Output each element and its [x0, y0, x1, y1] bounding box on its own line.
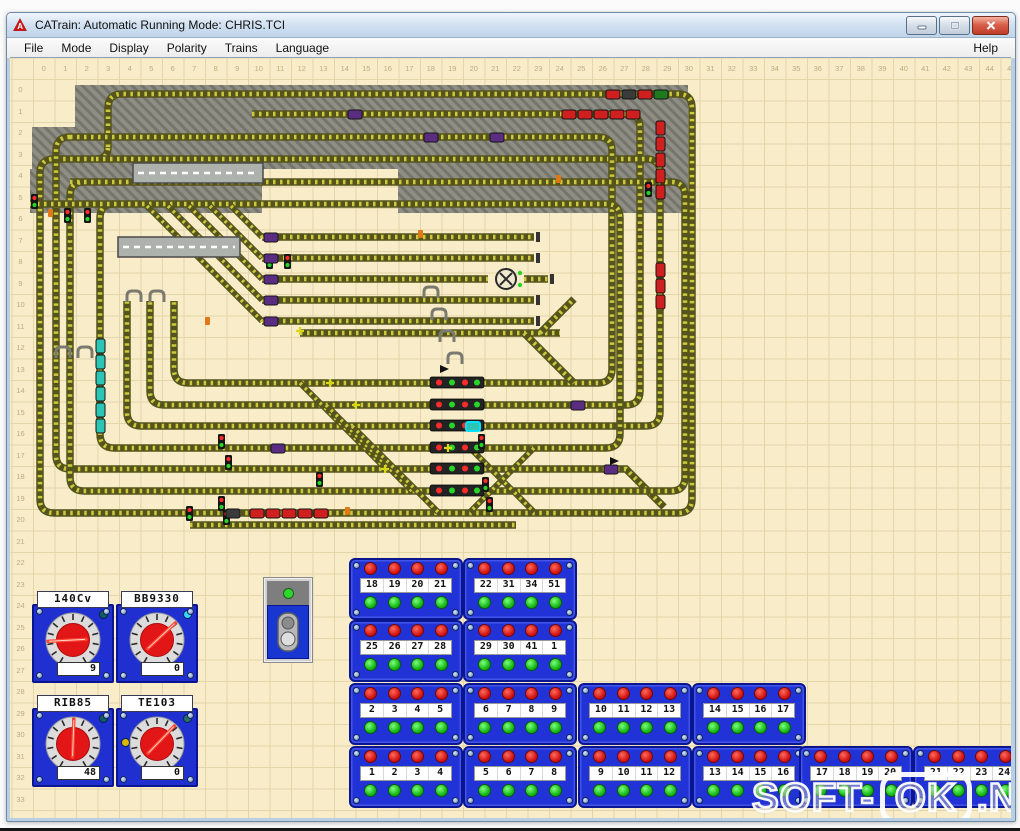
green-indicator-light[interactable] — [707, 721, 720, 734]
screw-icon — [681, 750, 688, 757]
turnout-number: 22 — [948, 767, 970, 780]
ruler-number: 17 — [10, 451, 31, 460]
train[interactable] — [348, 110, 362, 119]
turnout-number: 16 — [750, 704, 772, 717]
menu-item-polarity[interactable]: Polarity — [158, 40, 216, 56]
green-indicator-light[interactable] — [411, 658, 424, 671]
ruler-number: 10 — [10, 300, 31, 309]
red-indicator-light[interactable] — [549, 750, 562, 763]
screw-icon — [452, 671, 459, 678]
ruler-number: 21 — [10, 537, 31, 546]
turnout-number: 19 — [857, 767, 879, 780]
power-switch-body[interactable] — [267, 605, 309, 659]
light-row — [694, 685, 804, 702]
signal[interactable] — [284, 254, 291, 269]
ruler-number: 37 — [829, 64, 851, 73]
ruler-number: 24 — [549, 64, 571, 73]
turnout-number: 11 — [613, 704, 635, 717]
green-indicator-light[interactable] — [435, 596, 448, 609]
red-indicator-light[interactable] — [593, 687, 606, 700]
green-indicator-light[interactable] — [525, 658, 538, 671]
turnout-number: 34 — [521, 579, 543, 592]
red-indicator-light[interactable] — [549, 562, 562, 575]
red-indicator-light[interactable] — [754, 687, 767, 700]
light-row — [694, 782, 804, 799]
turnout-number: 21 — [429, 579, 451, 592]
light-row — [801, 782, 911, 799]
red-indicator-light[interactable] — [502, 750, 515, 763]
train[interactable] — [264, 233, 278, 242]
red-indicator-light[interactable] — [838, 750, 851, 763]
red-indicator-light[interactable] — [640, 750, 653, 763]
signal[interactable] — [31, 194, 38, 209]
turnout-number-strip: 17181920 — [810, 766, 902, 781]
turnout-number: 10 — [590, 704, 612, 717]
ruler-number: 29 — [657, 64, 679, 73]
green-indicator-light[interactable] — [975, 784, 988, 797]
green-indicator-light[interactable] — [388, 596, 401, 609]
ruler-number: 22 — [10, 558, 31, 567]
green-indicator-light[interactable] — [640, 721, 653, 734]
red-indicator-light[interactable] — [388, 687, 401, 700]
turnout-number-strip: 18192021 — [360, 578, 452, 593]
green-indicator-light[interactable] — [838, 784, 851, 797]
green-indicator-light[interactable] — [364, 721, 377, 734]
turnout-number: 22 — [475, 579, 497, 592]
green-indicator-light[interactable] — [861, 784, 874, 797]
signal[interactable] — [316, 472, 323, 487]
red-indicator-light[interactable] — [502, 624, 515, 637]
turnout-number: 17 — [772, 704, 794, 717]
red-indicator-light[interactable] — [617, 687, 630, 700]
green-indicator-light[interactable] — [364, 784, 377, 797]
ruler-number: 22 — [506, 64, 528, 73]
red-indicator-light[interactable] — [525, 687, 538, 700]
screw-icon — [120, 712, 127, 719]
red-indicator-light[interactable] — [478, 687, 491, 700]
green-indicator-light[interactable] — [952, 784, 965, 797]
block-signal-bar[interactable] — [430, 377, 484, 388]
green-indicator-light[interactable] — [640, 784, 653, 797]
menu-item-file[interactable]: File — [15, 40, 52, 56]
screw-icon — [582, 734, 589, 741]
green-indicator-light[interactable] — [435, 721, 448, 734]
minimize-button[interactable] — [906, 16, 937, 35]
tunnel-portal — [78, 347, 92, 358]
green-indicator-light[interactable] — [411, 596, 424, 609]
throttle-name: 140Cv — [37, 591, 109, 608]
screw-icon — [103, 672, 110, 679]
screw-icon — [120, 608, 127, 615]
turnout-number-strip: 2930411 — [474, 640, 566, 655]
green-indicator-light[interactable] — [814, 784, 827, 797]
throttle-controller-140Cv[interactable]: 140Cv 9 — [32, 591, 114, 683]
red-indicator-light[interactable] — [411, 562, 424, 575]
uncoupler-marker — [48, 209, 53, 217]
turnout-number: 3 — [407, 767, 429, 780]
train[interactable] — [466, 422, 480, 431]
turnout-number: 12 — [636, 704, 658, 717]
switch-marker[interactable] — [352, 401, 360, 409]
screw-icon — [467, 562, 474, 569]
light-row — [580, 748, 690, 765]
tracks[interactable] — [30, 94, 692, 525]
red-indicator-light[interactable] — [778, 687, 791, 700]
light-row — [351, 656, 461, 673]
green-indicator-light[interactable] — [478, 721, 491, 734]
screw-icon — [103, 776, 110, 783]
throttle-body: 9 — [32, 604, 114, 683]
screw-icon — [467, 609, 474, 616]
screw-icon — [353, 687, 360, 694]
green-indicator-light[interactable] — [754, 784, 767, 797]
throttle-controller-BB9330[interactable]: BB9330 0 — [116, 591, 198, 683]
ruler-number: 13 — [313, 64, 335, 73]
red-indicator-light[interactable] — [731, 750, 744, 763]
screw-icon — [467, 624, 474, 631]
green-indicator-light[interactable] — [617, 784, 630, 797]
green-indicator-light[interactable] — [388, 721, 401, 734]
screw-icon — [566, 687, 573, 694]
red-indicator-light[interactable] — [928, 750, 941, 763]
tunnel-portal — [440, 331, 454, 342]
light-row — [801, 748, 911, 765]
ruler-number: 44 — [979, 64, 1001, 73]
train[interactable] — [96, 339, 105, 433]
ruler-number: 0 — [10, 85, 31, 94]
red-indicator-light[interactable] — [502, 562, 515, 575]
signal[interactable] — [218, 496, 225, 511]
green-indicator-light[interactable] — [999, 784, 1011, 797]
ruler-number: 26 — [592, 64, 614, 73]
turnout-number: 19 — [384, 579, 406, 592]
red-indicator-light[interactable] — [617, 750, 630, 763]
signal[interactable] — [186, 506, 193, 521]
turnout-panel-17-18-19-20: 17181920 — [799, 746, 913, 808]
throttle-value: 48 — [57, 766, 100, 780]
red-indicator-light[interactable] — [754, 750, 767, 763]
title-bar[interactable]: A CATrain: Automatic Running Mode: CHRIS… — [7, 13, 1015, 38]
tunnel-cover — [32, 127, 688, 169]
screw-icon — [917, 750, 924, 757]
screw-icon — [566, 562, 573, 569]
green-indicator-light[interactable] — [707, 784, 720, 797]
green-indicator-light[interactable] — [435, 658, 448, 671]
uncoupler-marker — [418, 230, 423, 238]
green-indicator-light[interactable] — [478, 658, 491, 671]
ruler-number: 31 — [700, 64, 722, 73]
switch-marker[interactable] — [326, 379, 334, 387]
green-indicator-light[interactable] — [525, 596, 538, 609]
turnout-number: 9 — [590, 767, 612, 780]
screw-icon — [681, 797, 688, 804]
signal[interactable] — [266, 254, 273, 269]
block-signal-bar[interactable] — [430, 442, 484, 453]
red-indicator-light[interactable] — [364, 687, 377, 700]
signal[interactable] — [482, 477, 489, 492]
green-indicator-light[interactable] — [549, 784, 562, 797]
red-indicator-light[interactable] — [478, 562, 491, 575]
red-indicator-light[interactable] — [364, 750, 377, 763]
buffer-stop — [536, 253, 540, 263]
menu-item-display[interactable]: Display — [100, 40, 157, 56]
ruler-number: 27 — [10, 666, 31, 675]
ruler-number: 34 — [10, 816, 31, 818]
red-indicator-light[interactable] — [388, 624, 401, 637]
throttle-led-icon — [121, 738, 130, 747]
green-indicator-light[interactable] — [549, 596, 562, 609]
switch-marker[interactable] — [444, 444, 452, 452]
train[interactable] — [264, 275, 278, 284]
red-indicator-light[interactable] — [664, 750, 677, 763]
red-indicator-light[interactable] — [664, 687, 677, 700]
turnout-number: 20 — [407, 579, 429, 592]
green-indicator-light[interactable] — [525, 784, 538, 797]
block-signal-bar[interactable] — [430, 420, 484, 431]
red-indicator-light[interactable] — [640, 687, 653, 700]
red-indicator-light[interactable] — [707, 750, 720, 763]
screw-icon — [353, 797, 360, 804]
screw-icon — [696, 750, 703, 757]
green-indicator-light[interactable] — [388, 658, 401, 671]
green-indicator-light[interactable] — [478, 784, 491, 797]
train[interactable] — [264, 317, 278, 326]
ruler-number: 7 — [184, 64, 206, 73]
turnout-panel-1-2-3-4: 1234 — [349, 746, 463, 808]
train[interactable] — [562, 110, 640, 119]
tunnel-portal — [150, 291, 164, 302]
signal[interactable] — [64, 208, 71, 223]
red-indicator-light[interactable] — [411, 624, 424, 637]
light-row — [465, 748, 575, 765]
red-indicator-light[interactable] — [731, 687, 744, 700]
green-indicator-light[interactable] — [549, 721, 562, 734]
green-indicator-light[interactable] — [478, 596, 491, 609]
screw-icon — [566, 797, 573, 804]
window-buttons — [906, 16, 1009, 35]
screw-icon — [36, 672, 43, 679]
light-row — [694, 748, 804, 765]
red-indicator-light[interactable] — [549, 624, 562, 637]
train[interactable] — [656, 121, 665, 199]
red-indicator-light[interactable] — [593, 750, 606, 763]
ruler-number: 1 — [55, 64, 77, 73]
block-signal-bar[interactable] — [430, 463, 484, 474]
tunnel-cover — [398, 169, 688, 213]
green-indicator-light[interactable] — [664, 784, 677, 797]
ruler-number: 29 — [10, 709, 31, 718]
green-indicator-light[interactable] — [502, 721, 515, 734]
signal[interactable] — [645, 182, 652, 197]
green-indicator-light[interactable] — [525, 721, 538, 734]
direction-arrow-icon — [440, 365, 449, 373]
green-indicator-light[interactable] — [411, 721, 424, 734]
green-indicator-light[interactable] — [778, 784, 791, 797]
switch-marker[interactable] — [296, 327, 304, 335]
turnout-number: 30 — [498, 641, 520, 654]
train[interactable] — [490, 133, 504, 142]
ruler-number: 1 — [10, 107, 31, 116]
direction-arrow-icon — [610, 457, 619, 465]
green-indicator-light[interactable] — [885, 784, 898, 797]
train[interactable] — [606, 90, 668, 99]
signal[interactable] — [486, 497, 493, 512]
train[interactable] — [604, 465, 618, 474]
green-indicator-light[interactable] — [593, 784, 606, 797]
ruler-number: 20 — [10, 515, 31, 524]
green-indicator-light[interactable] — [778, 721, 791, 734]
red-indicator-light[interactable] — [975, 750, 988, 763]
screw-icon — [803, 750, 810, 757]
ruler-number: 4 — [119, 64, 141, 73]
red-indicator-light[interactable] — [388, 750, 401, 763]
ruler-number: 5 — [10, 193, 31, 202]
turnout-number-strip: 21222324 — [924, 766, 1011, 781]
red-indicator-light[interactable] — [525, 750, 538, 763]
red-indicator-light[interactable] — [411, 687, 424, 700]
turnout-number: 21 — [925, 767, 947, 780]
menu-item-language[interactable]: Language — [267, 40, 338, 56]
light-row — [915, 782, 1011, 799]
red-indicator-light[interactable] — [525, 624, 538, 637]
red-indicator-light[interactable] — [478, 750, 491, 763]
power-switch-panel[interactable] — [263, 577, 313, 663]
screw-icon — [795, 734, 802, 741]
tunnel-portal — [424, 287, 438, 298]
green-indicator-light[interactable] — [502, 658, 515, 671]
green-indicator-light[interactable] — [754, 721, 767, 734]
green-indicator-light[interactable] — [502, 596, 515, 609]
layout-client-area[interactable]: 0123456789101112131415161718192021222324… — [10, 57, 1011, 818]
red-indicator-light[interactable] — [952, 750, 965, 763]
turnout-panel-25-26-27-28: 25262728 — [349, 620, 463, 682]
light-row — [465, 560, 575, 577]
screw-icon — [187, 776, 194, 783]
throttle-controller-RIB85[interactable]: RIB85 48 — [32, 695, 114, 787]
train[interactable] — [264, 296, 278, 305]
ruler-number: 11 — [270, 64, 292, 73]
red-indicator-light[interactable] — [814, 750, 827, 763]
turnout-number: 1 — [361, 767, 383, 780]
train[interactable] — [250, 509, 328, 518]
ruler-number: 2 — [76, 64, 98, 73]
block-signal-bar[interactable] — [430, 485, 484, 496]
red-indicator-light[interactable] — [435, 562, 448, 575]
light-row — [351, 594, 461, 611]
screw-icon — [452, 609, 459, 616]
screw-icon — [917, 797, 924, 804]
red-indicator-light[interactable] — [364, 624, 377, 637]
ruler-number: 9 — [227, 64, 249, 73]
red-indicator-light[interactable] — [502, 687, 515, 700]
screw-icon — [36, 712, 43, 719]
signal[interactable] — [223, 510, 230, 525]
green-indicator-light[interactable] — [411, 784, 424, 797]
ruler-number: 41 — [915, 64, 937, 73]
close-button[interactable] — [972, 16, 1009, 35]
green-indicator-light[interactable] — [617, 721, 630, 734]
green-indicator-light[interactable] — [549, 658, 562, 671]
tunnel-portal — [432, 309, 446, 320]
turnout-number-strip: 9101112 — [589, 766, 681, 781]
turnout-number: 4 — [429, 767, 451, 780]
menu-item-trains[interactable]: Trains — [216, 40, 267, 56]
turnout-number: 2 — [361, 704, 383, 717]
red-indicator-light[interactable] — [778, 750, 791, 763]
turnout-number-strip: 13141516 — [703, 766, 795, 781]
train[interactable] — [424, 133, 438, 142]
switch-marker[interactable] — [381, 465, 389, 473]
red-indicator-light[interactable] — [885, 750, 898, 763]
red-indicator-light[interactable] — [435, 624, 448, 637]
menu-item-mode[interactable]: Mode — [52, 40, 100, 56]
train[interactable] — [271, 444, 285, 453]
red-indicator-light[interactable] — [861, 750, 874, 763]
ruler-number: 34 — [764, 64, 786, 73]
green-indicator-light[interactable] — [731, 784, 744, 797]
maximize-button[interactable] — [939, 16, 970, 35]
block-signal-bar[interactable] — [430, 399, 484, 410]
ruler-number: 3 — [98, 64, 120, 73]
signal[interactable] — [478, 434, 485, 449]
ruler-number: 30 — [10, 730, 31, 739]
red-indicator-light[interactable] — [707, 687, 720, 700]
red-indicator-light[interactable] — [388, 562, 401, 575]
menu-item-help[interactable]: Help — [964, 40, 1007, 56]
green-indicator-light[interactable] — [731, 721, 744, 734]
red-indicator-light[interactable] — [999, 750, 1011, 763]
red-indicator-light[interactable] — [478, 624, 491, 637]
red-indicator-light[interactable] — [435, 750, 448, 763]
throttle-controller-TE103[interactable]: TE103 0 — [116, 695, 198, 787]
screw-icon — [353, 624, 360, 631]
green-indicator-light[interactable] — [364, 596, 377, 609]
train[interactable] — [571, 401, 585, 410]
green-indicator-light[interactable] — [364, 658, 377, 671]
tunnel-cover — [75, 85, 688, 127]
train[interactable] — [226, 509, 240, 518]
red-indicator-light[interactable] — [525, 562, 538, 575]
green-indicator-light[interactable] — [593, 721, 606, 734]
train[interactable] — [264, 254, 278, 263]
red-indicator-light[interactable] — [549, 687, 562, 700]
ruler-number: 13 — [10, 365, 31, 374]
signal[interactable] — [225, 455, 232, 470]
green-indicator-light[interactable] — [435, 784, 448, 797]
ruler-number: 27 — [614, 64, 636, 73]
light-row — [351, 560, 461, 577]
turnout-number: 27 — [407, 641, 429, 654]
red-indicator-light[interactable] — [364, 562, 377, 575]
green-indicator-light[interactable] — [664, 721, 677, 734]
signal[interactable] — [218, 434, 225, 449]
green-indicator-light[interactable] — [928, 784, 941, 797]
turnout-number: 29 — [475, 641, 497, 654]
red-indicator-light[interactable] — [411, 750, 424, 763]
ruler-number: 38 — [850, 64, 872, 73]
turntable[interactable] — [496, 269, 522, 289]
green-indicator-light[interactable] — [388, 784, 401, 797]
train[interactable] — [656, 263, 665, 309]
signal[interactable] — [84, 208, 91, 223]
screw-icon — [120, 672, 127, 679]
red-indicator-light[interactable] — [435, 687, 448, 700]
screw-icon — [452, 750, 459, 757]
screw-icon — [452, 734, 459, 741]
green-indicator-light[interactable] — [502, 784, 515, 797]
menu-items: FileModeDisplayPolarityTrainsLanguage — [15, 40, 338, 56]
turnout-number: 14 — [704, 704, 726, 717]
